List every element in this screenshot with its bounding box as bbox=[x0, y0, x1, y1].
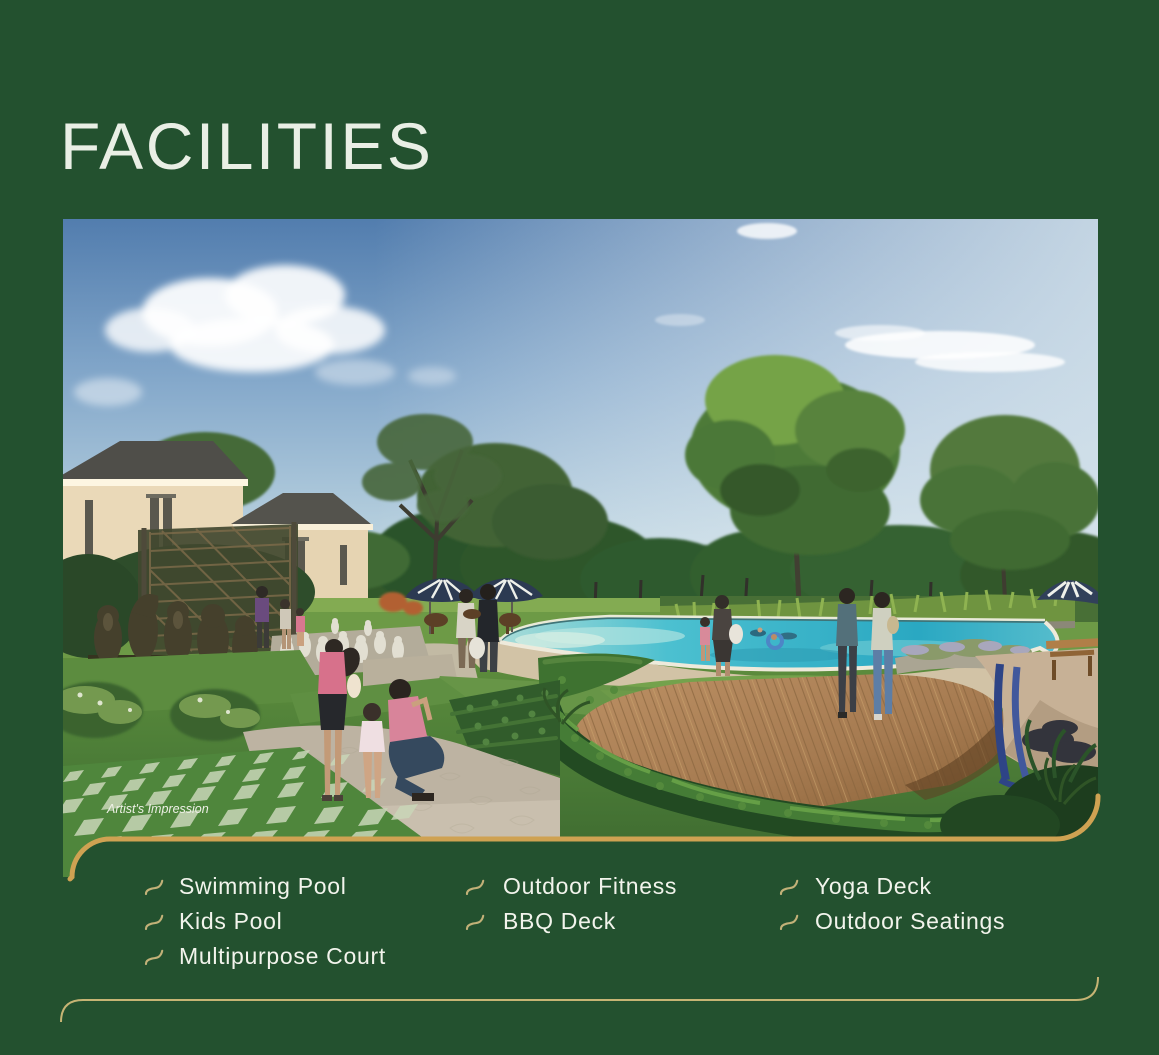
svg-text:Artist's Impression: Artist's Impression bbox=[106, 802, 209, 816]
